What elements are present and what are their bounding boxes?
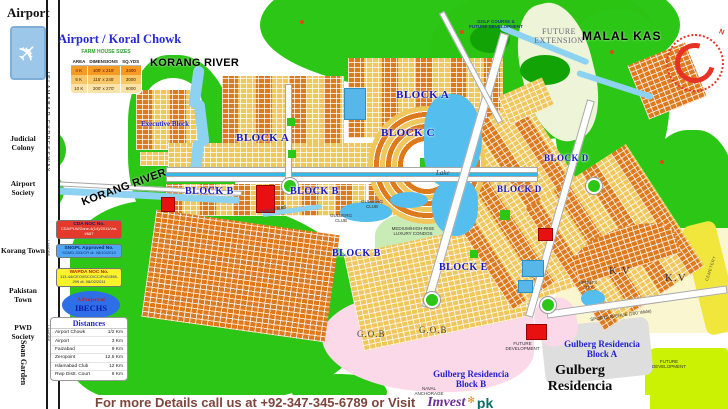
- farm-table-row: 4 K 100' x 216' 2400: [71, 66, 142, 76]
- distance-row: Faizabad9 Km: [51, 346, 127, 354]
- farm-table-caption: FARM HOUSE SIZES: [68, 49, 144, 55]
- red-plot: [538, 228, 553, 241]
- footer-logo-text: Imvest: [427, 395, 465, 409]
- locality-strip: Airport ✈ Judicial Colony Airport Societ…: [0, 0, 46, 409]
- farm-cell: 2400: [120, 66, 141, 76]
- distance-row: Islamabad Club12 Km: [51, 363, 127, 371]
- park-plot: [470, 250, 478, 258]
- airplane-icon: ✈: [11, 36, 46, 71]
- locality-airport-society: Airport Society: [0, 179, 46, 197]
- project-badge: A Project of IBECHS: [62, 291, 120, 319]
- distance-name: Airport: [55, 339, 69, 344]
- farm-header-area: AREA: [71, 57, 88, 66]
- locality-pwd-society: PWD Society: [0, 323, 46, 341]
- commercial-plot: [518, 280, 533, 293]
- farm-table-row: 5 K 115' x 245' 3000: [71, 75, 142, 84]
- roundabout: [540, 297, 556, 313]
- road: [285, 84, 292, 180]
- red-plot: [526, 324, 547, 340]
- distance-row: Rwp Distt. Court8 Km: [51, 371, 127, 378]
- future-development-area: [645, 348, 728, 409]
- roundabout: [586, 178, 602, 194]
- distance-row: Zeropoint12.5 Km: [51, 354, 127, 362]
- main-boulevard: [166, 176, 538, 182]
- footer-contact-text: For more Details call us at +92-347-345-…: [95, 395, 415, 409]
- distance-row: Airport Chowk1/2 Km: [51, 329, 127, 337]
- commercial-plot: [522, 260, 544, 277]
- noc-detail: 113-44/CEO/ISCO/CC/PdG/398-299 dt. 08/02…: [59, 275, 119, 285]
- tree-dot: [300, 20, 304, 24]
- distance-name: Faizabad: [55, 347, 75, 352]
- commercial-plot: [344, 88, 366, 120]
- farm-table-header-row: AREA DIMENSIONS SQ.YDS: [71, 57, 142, 66]
- tree-dot: [660, 160, 664, 164]
- distance-name: Zeropoint: [55, 355, 75, 360]
- noc-detail: CDA/PLW/Zone-4(14)/2011/Vol-I/687: [59, 227, 119, 237]
- park-plot: [287, 118, 295, 126]
- distance-value: 1/2 Km: [108, 330, 123, 335]
- direction-tag: LAHORE: [46, 240, 51, 256]
- footer-bar: For more Details call us at +92-347-345-…: [60, 395, 650, 409]
- tree-dot: [460, 30, 464, 34]
- farm-house-sizes-table: AREA DIMENSIONS SQ.YDS 4 K 100' x 216' 2…: [70, 56, 142, 94]
- distance-name: Islamabad Club: [55, 364, 88, 369]
- distance-value: 8 Km: [112, 372, 123, 377]
- locality-soan-garden: Soan Garden: [19, 340, 28, 385]
- red-plot: [161, 197, 175, 212]
- footer-logo: Imvest ✻ pk: [427, 395, 493, 409]
- map-title: Airport / Koral Chowk: [58, 32, 181, 47]
- distance-value: 12 Km: [109, 364, 123, 369]
- project-badge-line2: IBECHS: [75, 303, 107, 313]
- farm-header-dimensions: DIMENSIONS: [87, 57, 120, 66]
- farm-cell: 115' x 245': [87, 75, 120, 84]
- sngpl-noc-box: SNGPL Approved No. SGMD-333/CR dt. 08/10…: [56, 244, 122, 258]
- tree-dot: [610, 50, 614, 54]
- distance-row: Airport3 Km: [51, 337, 127, 345]
- roundabout: [424, 292, 440, 308]
- footer-logo-suffix: pk: [477, 395, 493, 409]
- roundabout: [282, 178, 298, 194]
- farm-header-sqyds: SQ.YDS: [120, 57, 141, 66]
- park-plot: [288, 150, 296, 158]
- farm-cell: 6000: [120, 84, 141, 94]
- airport-label: Airport: [7, 5, 50, 21]
- cda-noc-box: CDA NOC No. CDA/PLW/Zone-4(14)/2011/Vol-…: [56, 220, 122, 239]
- locality-korang-town: Korang Town: [0, 246, 46, 255]
- distance-value: 9 Km: [112, 347, 123, 352]
- farm-cell: 10 K: [71, 84, 88, 94]
- golf-tree-cluster: [520, 55, 570, 85]
- flower-icon: ✻: [467, 395, 475, 406]
- club-pond: [340, 202, 392, 222]
- distance-name: Airport Chowk: [55, 330, 85, 335]
- farm-cell: 5 K: [71, 75, 88, 84]
- farm-table-row: 10 K 200' x 270' 6000: [71, 84, 142, 94]
- farm-cell: 3000: [120, 75, 141, 84]
- distances-panel: Distances Airport Chowk1/2 Km Airport3 K…: [50, 317, 128, 381]
- locality-judicial-colony: Judicial Colony: [0, 134, 46, 152]
- farm-cell: 4 K: [71, 66, 88, 76]
- master-plan-map: N KORANG RIVERKORANG RIVERMALAL KASFUTUR…: [0, 0, 728, 409]
- wapda-noc-box: WAPDA NOC No. 113-44/CEO/ISCO/CC/PdG/398…: [56, 268, 122, 287]
- compass-north-label: N: [718, 28, 725, 36]
- distance-name: Rwp Distt. Court: [55, 372, 90, 377]
- farm-cell: 100' x 216': [87, 66, 120, 76]
- distances-title: Distances: [51, 319, 127, 329]
- distance-value: 12.5 Km: [105, 355, 123, 360]
- airport-sign: ✈: [10, 26, 46, 80]
- farm-cell: 200' x 270': [87, 84, 120, 94]
- distance-value: 3 Km: [112, 339, 123, 344]
- red-plot: [256, 185, 275, 213]
- locality-pakistan-town: Pakistan Town: [0, 286, 46, 304]
- compass-rose: N: [666, 34, 724, 92]
- park-plot: [500, 210, 510, 220]
- noc-detail: SGMD-333/CR dt. 08/10/2010: [59, 251, 119, 256]
- club-pond: [390, 192, 428, 208]
